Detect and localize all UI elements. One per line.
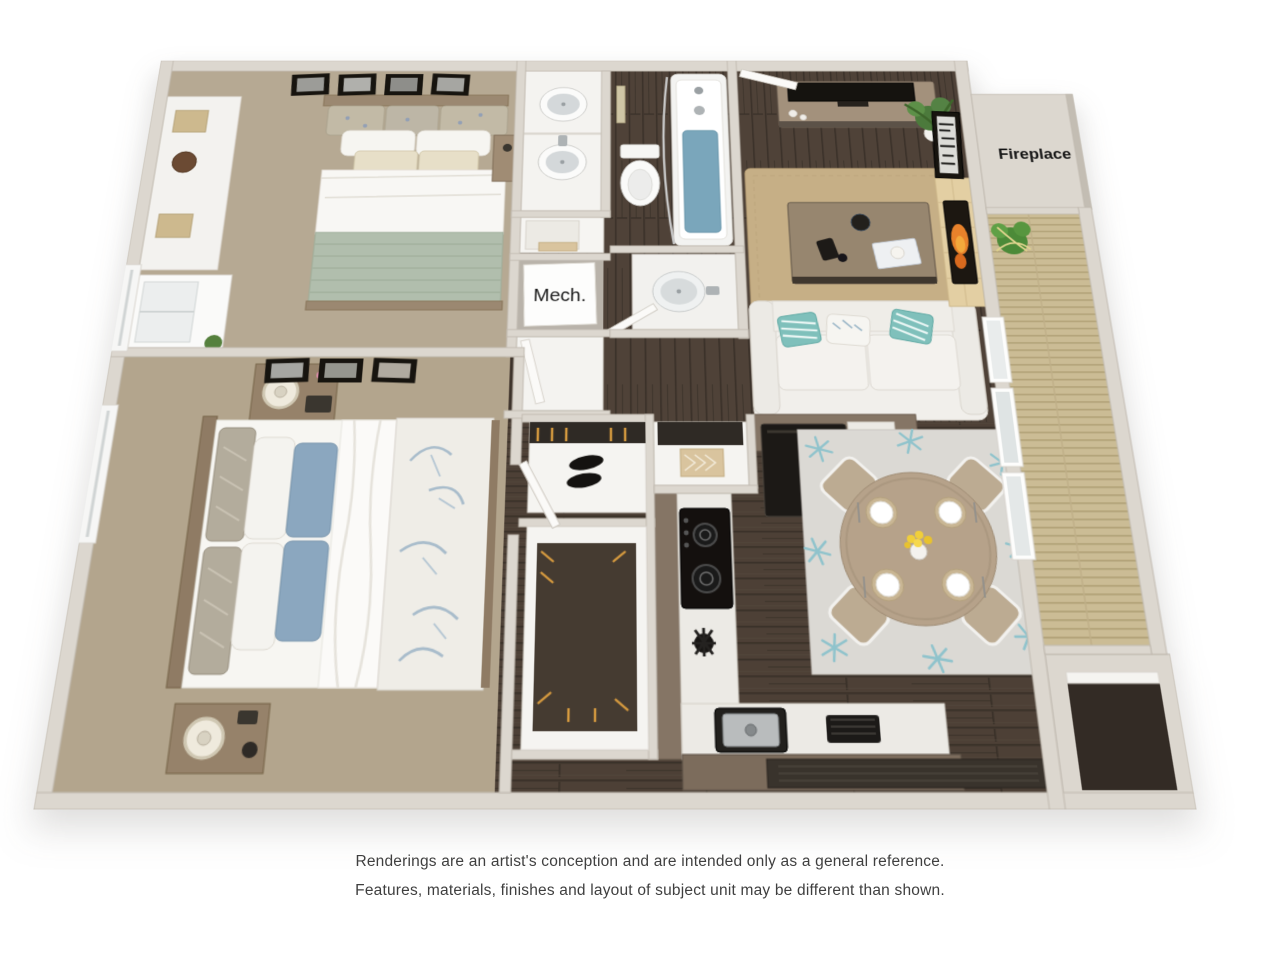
kitchen-sink [715,708,788,752]
powder-sink [632,254,738,329]
console-decor [789,110,798,117]
toilet-tank [621,145,660,158]
burner [693,524,717,547]
footboard [305,301,502,310]
walkin-floor [533,543,638,731]
balcony-rail-top [986,207,1079,214]
tv-stand [837,101,868,106]
wall-mech-bottom [507,330,610,337]
closet-shelf-dark [529,422,645,443]
wall-walkin-bottom [512,750,658,759]
disclaimer-line-2: Features, materials, finishes and layout… [10,876,1280,905]
tv-screen [787,83,915,101]
stove [679,508,733,608]
floor-plan-page: Mech. [0,0,1280,960]
wall-bed1-bed2 [111,348,525,357]
wall-closet-divider [519,519,655,527]
wall-bath-hall [610,330,749,338]
tablet [305,396,333,413]
bed-sheet [315,170,505,234]
wall-vanity-right [601,71,611,217]
mech-label: Mech. [533,285,586,305]
linen-closet [520,217,604,252]
fireplace-label: Fireplace [997,147,1072,163]
blue-pillow [285,443,338,537]
teal-striped-pillow [777,312,822,348]
storage-box [173,110,209,132]
table-frame [792,277,937,284]
sofa [749,301,989,420]
wall-pantry-bottom [654,485,758,493]
towel-on-bar [617,86,625,123]
wall-art [932,111,964,178]
storage-closet-exterior [1045,654,1197,809]
nightstand-decor [237,711,258,725]
storage-door [1066,672,1160,683]
seat-cushion [866,335,961,390]
storage-interior [1066,672,1178,790]
coffee-table [788,203,938,284]
pantry-closet [653,422,749,485]
balcony-rail-bottom [1044,645,1152,654]
wall-shoe-closet-top [522,414,653,422]
wall-exterior-top [159,61,968,71]
mech-closet: Mech. [517,259,604,329]
closets [521,422,649,750]
floor-plan-3d: Mech. [33,61,1196,810]
wall-tub-sink-divider [610,246,744,253]
wall-vanity-bottom [511,211,610,218]
walk-in-closet [521,527,649,750]
console-shelf [779,121,939,127]
disclaimer-text: Renderings are an artist's conception an… [10,847,1280,905]
patterned-towel [539,242,577,250]
headboard [323,95,508,106]
bed-1 [301,95,510,310]
floor-plan-svg: Mech. [33,61,1196,810]
faucet [558,135,567,146]
bed-2 [166,416,500,690]
disclaimer-line-1: Renderings are an artist's conception an… [10,847,1280,876]
storage-box [155,214,193,237]
wall-exterior-bottom [33,793,1196,810]
tub-water [683,131,722,233]
burner [692,565,720,592]
woven-basket [680,449,724,476]
floral-duvet [377,418,494,690]
white-pattern-pillow [826,314,870,347]
toilet [621,145,661,206]
nightstand-with-lamp [166,704,270,774]
wall-linen-bottom [510,254,611,261]
hall-closet [514,337,603,411]
faucet [706,286,720,295]
bedroom2-frames [263,358,417,383]
pantry-shelf [657,422,743,445]
sink-drain [745,724,757,736]
